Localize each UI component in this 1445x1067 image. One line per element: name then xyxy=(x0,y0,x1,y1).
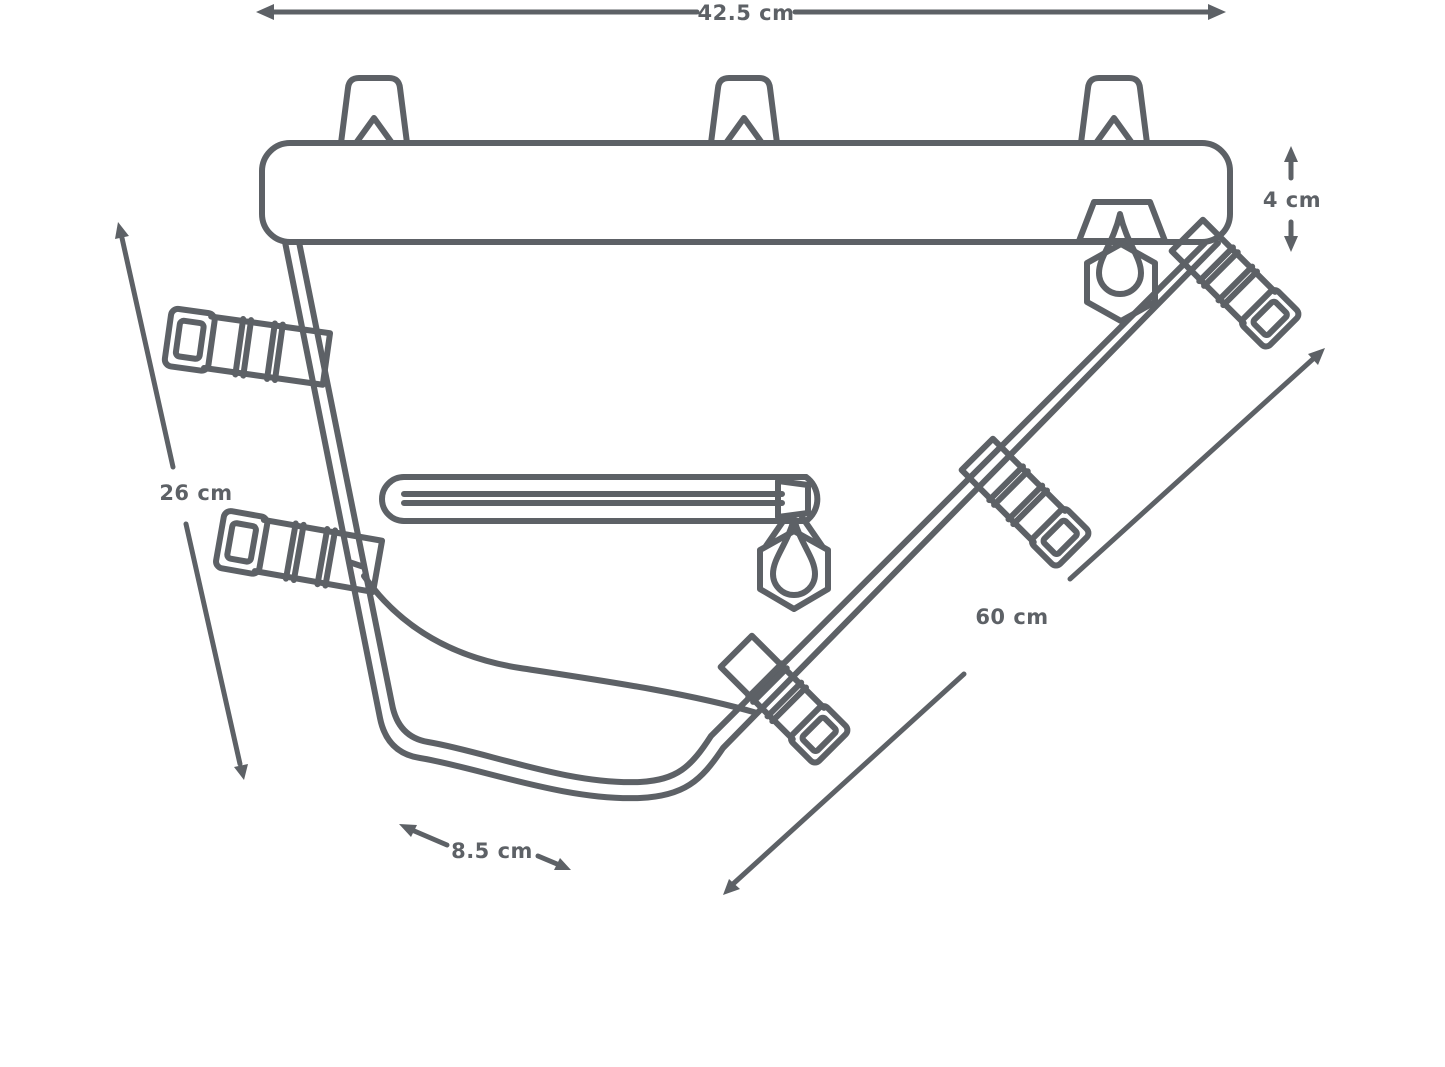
downtube-length-dimension: 60 cm xyxy=(723,348,1325,895)
bottom-depth-label: 8.5 cm xyxy=(451,839,533,863)
top-width-dimension: 42.5 cm xyxy=(256,1,1226,25)
dimension-line xyxy=(412,830,447,845)
zipper-garage xyxy=(1079,202,1165,321)
front-height-dimension: 26 cm xyxy=(115,222,248,780)
main-zipper xyxy=(382,477,828,609)
arrow-down-head xyxy=(234,764,248,780)
strap-downtube-middle xyxy=(960,437,1091,568)
strap-downtube-bottom xyxy=(719,634,850,765)
front-height-label: 26 cm xyxy=(159,481,232,505)
arrow-right-head xyxy=(1208,4,1226,20)
frame-pack-dimension-diagram: 42.5 cm 4 cm 26 cm 60 cm xyxy=(0,0,1445,1067)
sleeve-height-dimension: 4 cm xyxy=(1263,146,1321,252)
zipper-slider xyxy=(778,481,808,517)
velcro-tab xyxy=(711,78,777,143)
top-tube-sleeve xyxy=(262,78,1230,242)
dimension-line xyxy=(538,856,557,864)
diagram-canvas: 42.5 cm 4 cm 26 cm 60 cm xyxy=(0,0,1445,1067)
downtube-length-label: 60 cm xyxy=(975,605,1048,629)
zipper-left-cap xyxy=(382,477,404,521)
top-width-label: 42.5 cm xyxy=(698,1,795,25)
dimension-line xyxy=(1070,359,1313,579)
zipper-track xyxy=(404,477,806,521)
bottom-depth-dimension: 8.5 cm xyxy=(399,824,571,870)
zipper-pull-loop xyxy=(1099,214,1141,294)
velcro-tab xyxy=(1081,78,1147,143)
zipper-pull-tab xyxy=(1087,244,1155,321)
bottom-panel-seam xyxy=(364,576,757,713)
velcro-tab xyxy=(341,78,407,143)
arrow-down-head xyxy=(1284,236,1298,252)
sleeve-height-label: 4 cm xyxy=(1263,188,1321,212)
strap-downtube-top xyxy=(1170,218,1301,349)
